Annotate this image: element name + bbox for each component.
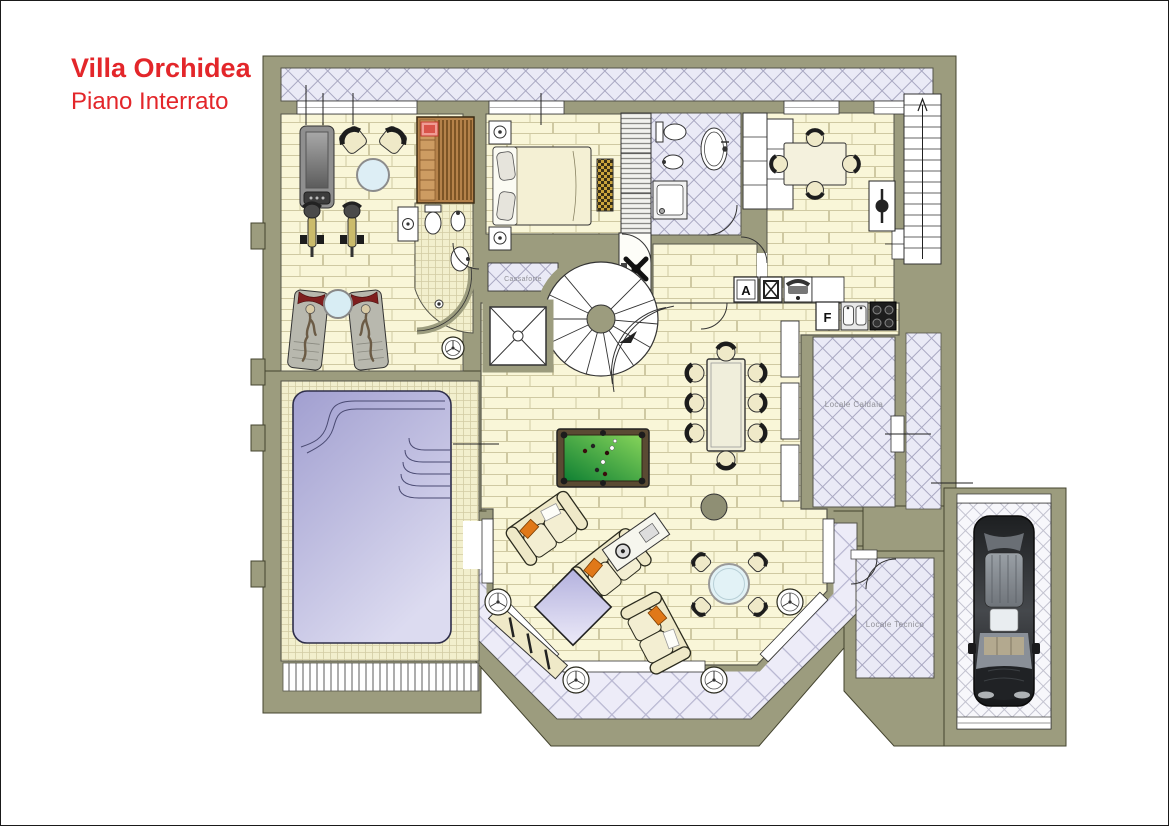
plan-title: Villa Orchidea xyxy=(71,53,252,83)
elevator-shaft xyxy=(486,303,550,369)
swimming-pool xyxy=(293,391,451,643)
wall-cabinet xyxy=(398,207,418,241)
freezer: F xyxy=(816,302,839,330)
chair xyxy=(717,343,735,361)
north-deck xyxy=(281,68,933,101)
freezer-symbol: F xyxy=(824,310,832,325)
nightstand xyxy=(489,121,511,144)
chair xyxy=(686,394,704,412)
chair xyxy=(843,156,860,173)
structural-column xyxy=(701,494,727,520)
wall-niches xyxy=(781,321,799,501)
poolside-table xyxy=(324,290,352,318)
stove xyxy=(870,302,896,330)
car-mirror xyxy=(1032,643,1040,654)
hob-appliance xyxy=(760,277,782,302)
chair xyxy=(717,451,735,469)
double-sink xyxy=(841,302,868,330)
treadmill xyxy=(300,126,334,208)
bed xyxy=(493,147,591,225)
technical-room-label: Locale Tecnico xyxy=(866,620,925,629)
car-mirror xyxy=(968,643,976,654)
kitchen-island-sink xyxy=(869,181,895,231)
exterior-staircase xyxy=(904,94,941,264)
plan-subtitle: Piano Interrato xyxy=(71,88,228,115)
nightstand xyxy=(489,227,511,250)
washing-machine: A xyxy=(734,277,758,302)
light-well-grate xyxy=(283,663,479,691)
floorplan-page: Villa Orchidea Piano Interrato xyxy=(0,0,1169,826)
garage xyxy=(957,494,1051,729)
chair xyxy=(686,364,704,382)
safe-label: Cassaforte xyxy=(504,276,542,283)
floorplan-drawing: Villa Orchidea Piano Interrato xyxy=(1,1,1169,826)
gym-side-table xyxy=(357,159,389,191)
billiard-table xyxy=(557,429,649,487)
car xyxy=(968,516,1040,706)
chair xyxy=(748,364,766,382)
counter xyxy=(812,277,844,302)
chair xyxy=(807,182,824,199)
drawing-title: Villa Orchidea Piano Interrato xyxy=(71,53,252,115)
car-sunroof xyxy=(990,609,1018,631)
chair xyxy=(748,424,766,442)
wardrobe xyxy=(621,113,651,233)
chair xyxy=(807,130,824,147)
technical-room: Locale Tecnico xyxy=(851,550,934,678)
chair xyxy=(771,156,788,173)
sauna-stove xyxy=(421,122,438,136)
deck-column xyxy=(442,337,464,359)
chair xyxy=(748,394,766,412)
chair xyxy=(686,424,704,442)
coffee-machine xyxy=(784,277,812,302)
sauna xyxy=(417,117,474,203)
boiler-room-label: Locale Caldaia xyxy=(825,400,884,409)
bedroom-bench xyxy=(597,159,613,211)
washer-symbol: A xyxy=(741,283,751,298)
